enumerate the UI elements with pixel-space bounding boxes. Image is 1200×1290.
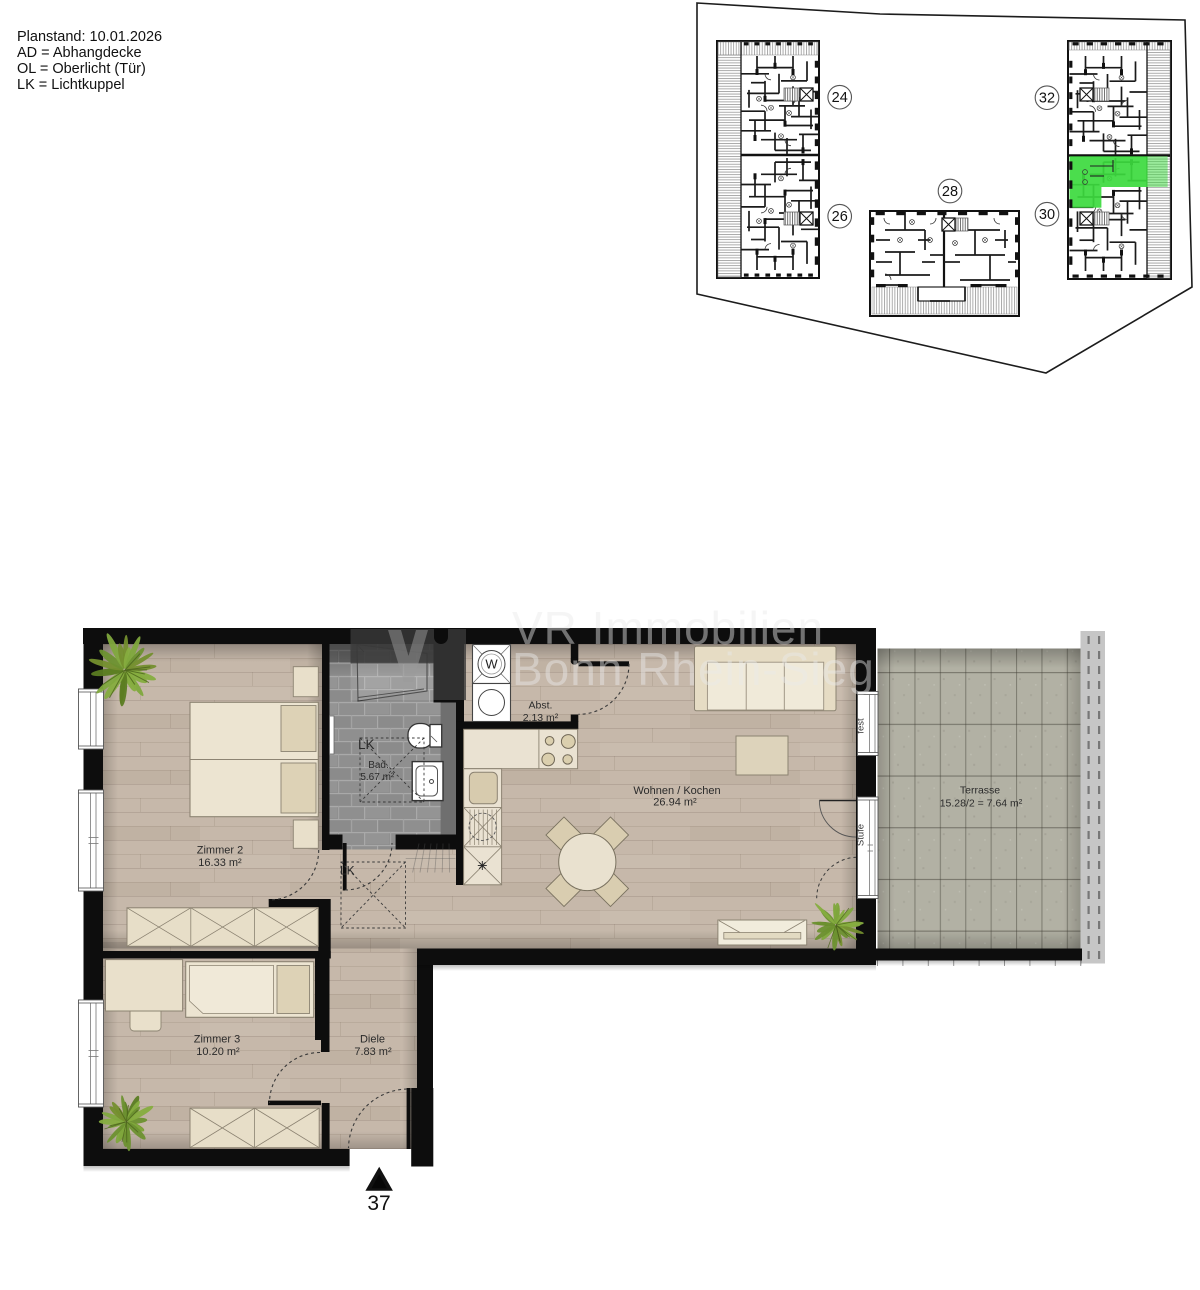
svg-text:LK: LK [340,864,355,878]
svg-text:Stufe: Stufe [856,824,867,846]
svg-text:32: 32 [1039,91,1055,107]
svg-text:Zimmer 2: Zimmer 2 [197,845,243,857]
svg-text:37: 37 [367,1192,390,1215]
svg-text:10.20 m²: 10.20 m² [196,1046,240,1058]
svg-text:26: 26 [832,209,848,225]
svg-text:fest: fest [856,718,867,734]
svg-text:AD = Abhangdecke: AD = Abhangdecke [17,45,142,61]
svg-text:16.33 m²: 16.33 m² [198,857,242,869]
svg-text:30: 30 [1039,207,1055,223]
svg-text:LK: LK [358,737,375,752]
svg-text:Planstand: 10.01.2026: Planstand: 10.01.2026 [17,29,162,45]
svg-text:OL = Oberlicht (Tür): OL = Oberlicht (Tür) [17,61,146,77]
svg-text:Terrasse: Terrasse [960,785,1000,797]
svg-text:5.67 m²: 5.67 m² [360,772,395,783]
svg-text:26.94 m²: 26.94 m² [653,797,697,809]
svg-text:7.83 m²: 7.83 m² [354,1046,392,1058]
svg-text:Diele: Diele [360,1034,385,1046]
svg-text:LK = Lichtkuppel: LK = Lichtkuppel [17,77,125,93]
svg-text:Zimmer 3: Zimmer 3 [194,1034,240,1046]
svg-text:2.13 m²: 2.13 m² [523,712,559,724]
svg-text:Abst.: Abst. [529,700,553,712]
svg-text:28: 28 [942,184,958,200]
svg-text:W: W [485,657,498,672]
svg-text:Wohnen / Kochen: Wohnen / Kochen [633,785,720,797]
svg-text:Bad.: Bad. [368,760,389,771]
svg-text:15.28/2 = 7.64 m²: 15.28/2 = 7.64 m² [940,798,1023,810]
svg-text:24: 24 [832,90,848,106]
svg-text:Bonn Rhein-Sieg: Bonn Rhein-Sieg [512,643,875,695]
